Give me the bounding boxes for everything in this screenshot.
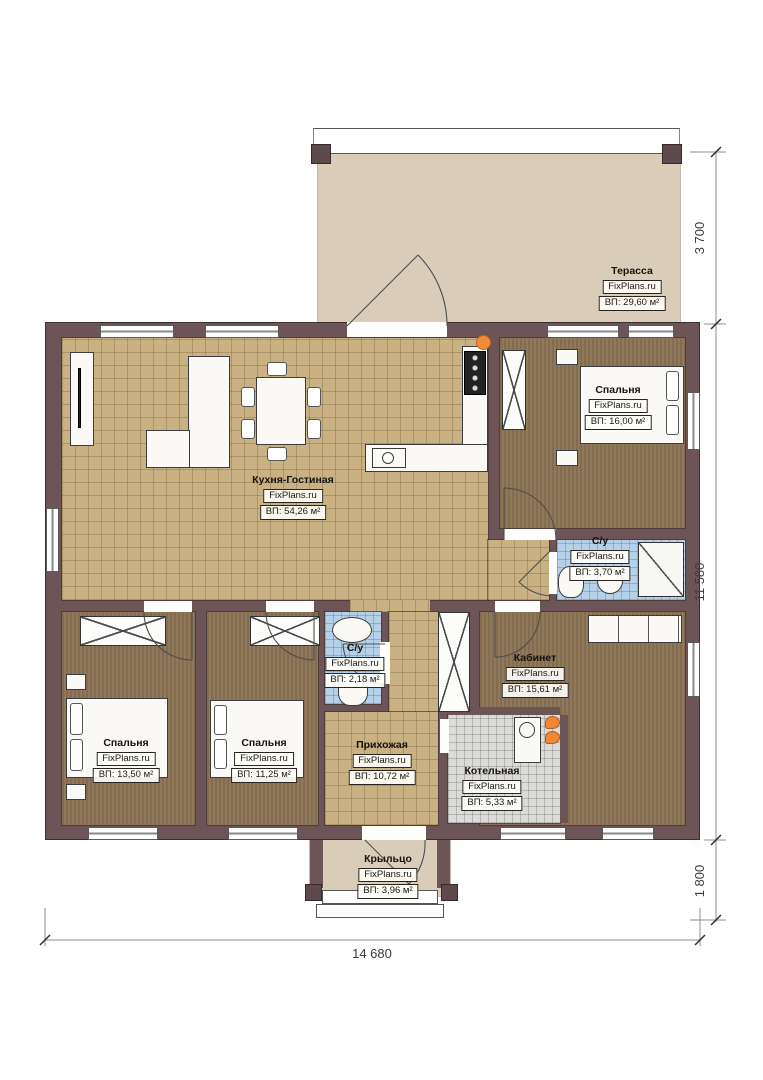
chair bbox=[307, 387, 321, 407]
porch-post bbox=[441, 884, 458, 901]
sofa bbox=[188, 356, 230, 468]
room-name: Прихожая bbox=[356, 740, 408, 752]
room-label-hallway: Прихожая FixPlans.ru ВП: 10,72 м² bbox=[349, 740, 416, 785]
room-area: ВП: 54,26 м² bbox=[260, 505, 327, 520]
room-label-bedroom-top: Спальня FixPlans.ru ВП: 16,00 м² bbox=[585, 385, 652, 430]
watermark: FixPlans.ru bbox=[358, 868, 418, 883]
pillow bbox=[666, 371, 679, 401]
room-name: С/у bbox=[347, 643, 363, 655]
chair bbox=[267, 447, 287, 461]
dining-table bbox=[256, 377, 306, 445]
room-name: С/у bbox=[592, 536, 608, 548]
window bbox=[687, 392, 700, 450]
room-label-porch: Крыльцо FixPlans.ru ВП: 3,96 м² bbox=[357, 854, 418, 899]
door-opening bbox=[495, 601, 540, 612]
porch-wall-right bbox=[437, 840, 450, 888]
porch-post bbox=[305, 884, 322, 901]
window bbox=[547, 325, 619, 338]
watermark: FixPlans.ru bbox=[325, 657, 385, 672]
wardrobe bbox=[502, 350, 526, 430]
window bbox=[46, 508, 59, 572]
watermark: FixPlans.ru bbox=[462, 780, 522, 795]
terrace-post bbox=[311, 144, 331, 164]
room-name: Кабинет bbox=[514, 653, 557, 665]
porch-step bbox=[316, 904, 444, 918]
kitchen-sink-basin bbox=[382, 452, 394, 464]
window bbox=[500, 827, 566, 840]
room-area: ВП: 3,70 м² bbox=[569, 566, 630, 581]
window bbox=[205, 325, 279, 338]
flame-icon bbox=[545, 716, 560, 729]
pillow bbox=[666, 405, 679, 435]
wardrobe bbox=[250, 616, 320, 646]
watermark: FixPlans.ru bbox=[234, 752, 294, 767]
room-name: Спальня bbox=[103, 738, 148, 750]
room-area: ВП: 3,96 м² bbox=[357, 884, 418, 899]
pillow bbox=[70, 703, 83, 735]
watermark: FixPlans.ru bbox=[263, 489, 323, 504]
door-opening bbox=[549, 552, 557, 594]
wardrobe bbox=[438, 612, 470, 712]
sofa-chaise bbox=[146, 430, 190, 468]
room-name: Терасса bbox=[611, 266, 653, 278]
watermark: FixPlans.ru bbox=[505, 667, 565, 682]
room-label-bedroom-left1: Спальня FixPlans.ru ВП: 13,50 м² bbox=[93, 738, 160, 783]
room-label-office: Кабинет FixPlans.ru ВП: 15,61 м² bbox=[502, 653, 569, 698]
nightstand bbox=[556, 450, 578, 466]
nightstand bbox=[66, 674, 86, 690]
window bbox=[687, 642, 700, 697]
front-door-opening bbox=[362, 826, 426, 840]
dim-porch-depth: 1 800 bbox=[692, 865, 707, 898]
lamp-icon bbox=[476, 335, 491, 350]
door-opening bbox=[266, 601, 314, 612]
room-area: ВП: 2,18 м² bbox=[324, 673, 385, 688]
tv bbox=[78, 368, 81, 428]
room-name: Котельная bbox=[465, 766, 520, 778]
window bbox=[228, 827, 298, 840]
watermark: FixPlans.ru bbox=[588, 399, 648, 414]
chair bbox=[307, 419, 321, 439]
door-opening bbox=[440, 719, 449, 753]
room-area: ВП: 29,60 м² bbox=[599, 296, 666, 311]
window bbox=[602, 827, 654, 840]
room-name: Спальня bbox=[241, 738, 286, 750]
window bbox=[628, 325, 674, 338]
room-label-kitchen-living: Кухня-Гостиная FixPlans.ru ВП: 54,26 м² bbox=[252, 475, 334, 520]
room-label-bath-right: С/у FixPlans.ru ВП: 3,70 м² bbox=[569, 536, 630, 581]
nightstand bbox=[66, 784, 86, 800]
window bbox=[100, 325, 174, 338]
corridor-floor bbox=[488, 540, 549, 600]
floor-plan: 3 700 11 580 1 800 14 680 Терасса FixPla… bbox=[0, 0, 763, 1080]
door-opening bbox=[504, 529, 556, 540]
flame-icon bbox=[545, 731, 560, 744]
watermark: FixPlans.ru bbox=[570, 550, 630, 565]
shower bbox=[638, 542, 684, 597]
office-shelf bbox=[588, 615, 682, 643]
watermark: FixPlans.ru bbox=[96, 752, 156, 767]
room-label-boiler: Котельная FixPlans.ru ВП: 5,33 м² bbox=[461, 766, 522, 811]
pillow bbox=[214, 739, 227, 769]
room-hallway-floor-top bbox=[389, 612, 438, 712]
door-opening bbox=[144, 601, 192, 612]
room-area: ВП: 10,72 м² bbox=[349, 770, 416, 785]
porch-wall-left bbox=[310, 840, 323, 888]
window bbox=[88, 827, 158, 840]
watermark: FixPlans.ru bbox=[352, 754, 412, 769]
room-area: ВП: 11,25 м² bbox=[231, 768, 297, 783]
pillow bbox=[214, 705, 227, 735]
boiler-dial bbox=[519, 722, 535, 738]
room-label-terrace: Терасса FixPlans.ru ВП: 29,60 м² bbox=[599, 266, 666, 311]
dim-house-width: 14 680 bbox=[352, 946, 392, 961]
chair bbox=[267, 362, 287, 376]
room-area: ВП: 13,50 м² bbox=[93, 768, 160, 783]
chair bbox=[241, 387, 255, 407]
tv-unit bbox=[70, 352, 94, 446]
room-name: Кухня-Гостиная bbox=[252, 475, 334, 487]
boiler-wall-right bbox=[560, 715, 568, 823]
room-label-bedroom-left2: Спальня FixPlans.ru ВП: 11,25 м² bbox=[231, 738, 297, 783]
room-label-bath-mid: С/у FixPlans.ru ВП: 2,18 м² bbox=[324, 643, 385, 688]
terrace-roof-edge bbox=[313, 128, 680, 154]
chair bbox=[241, 419, 255, 439]
hall-opening bbox=[350, 600, 430, 612]
room-name: Спальня bbox=[595, 385, 640, 397]
nightstand bbox=[556, 349, 578, 365]
room-area: ВП: 15,61 м² bbox=[502, 683, 569, 698]
pillow bbox=[70, 739, 83, 771]
terrace-door-opening bbox=[347, 322, 447, 337]
room-area: ВП: 16,00 м² bbox=[585, 415, 652, 430]
dim-terrace-depth: 3 700 bbox=[692, 222, 707, 255]
stove bbox=[464, 351, 486, 395]
washbasin bbox=[332, 617, 372, 643]
room-area: ВП: 5,33 м² bbox=[461, 796, 522, 811]
room-name: Крыльцо bbox=[364, 854, 412, 866]
wardrobe bbox=[80, 616, 166, 646]
watermark: FixPlans.ru bbox=[602, 280, 662, 295]
terrace-post bbox=[662, 144, 682, 164]
